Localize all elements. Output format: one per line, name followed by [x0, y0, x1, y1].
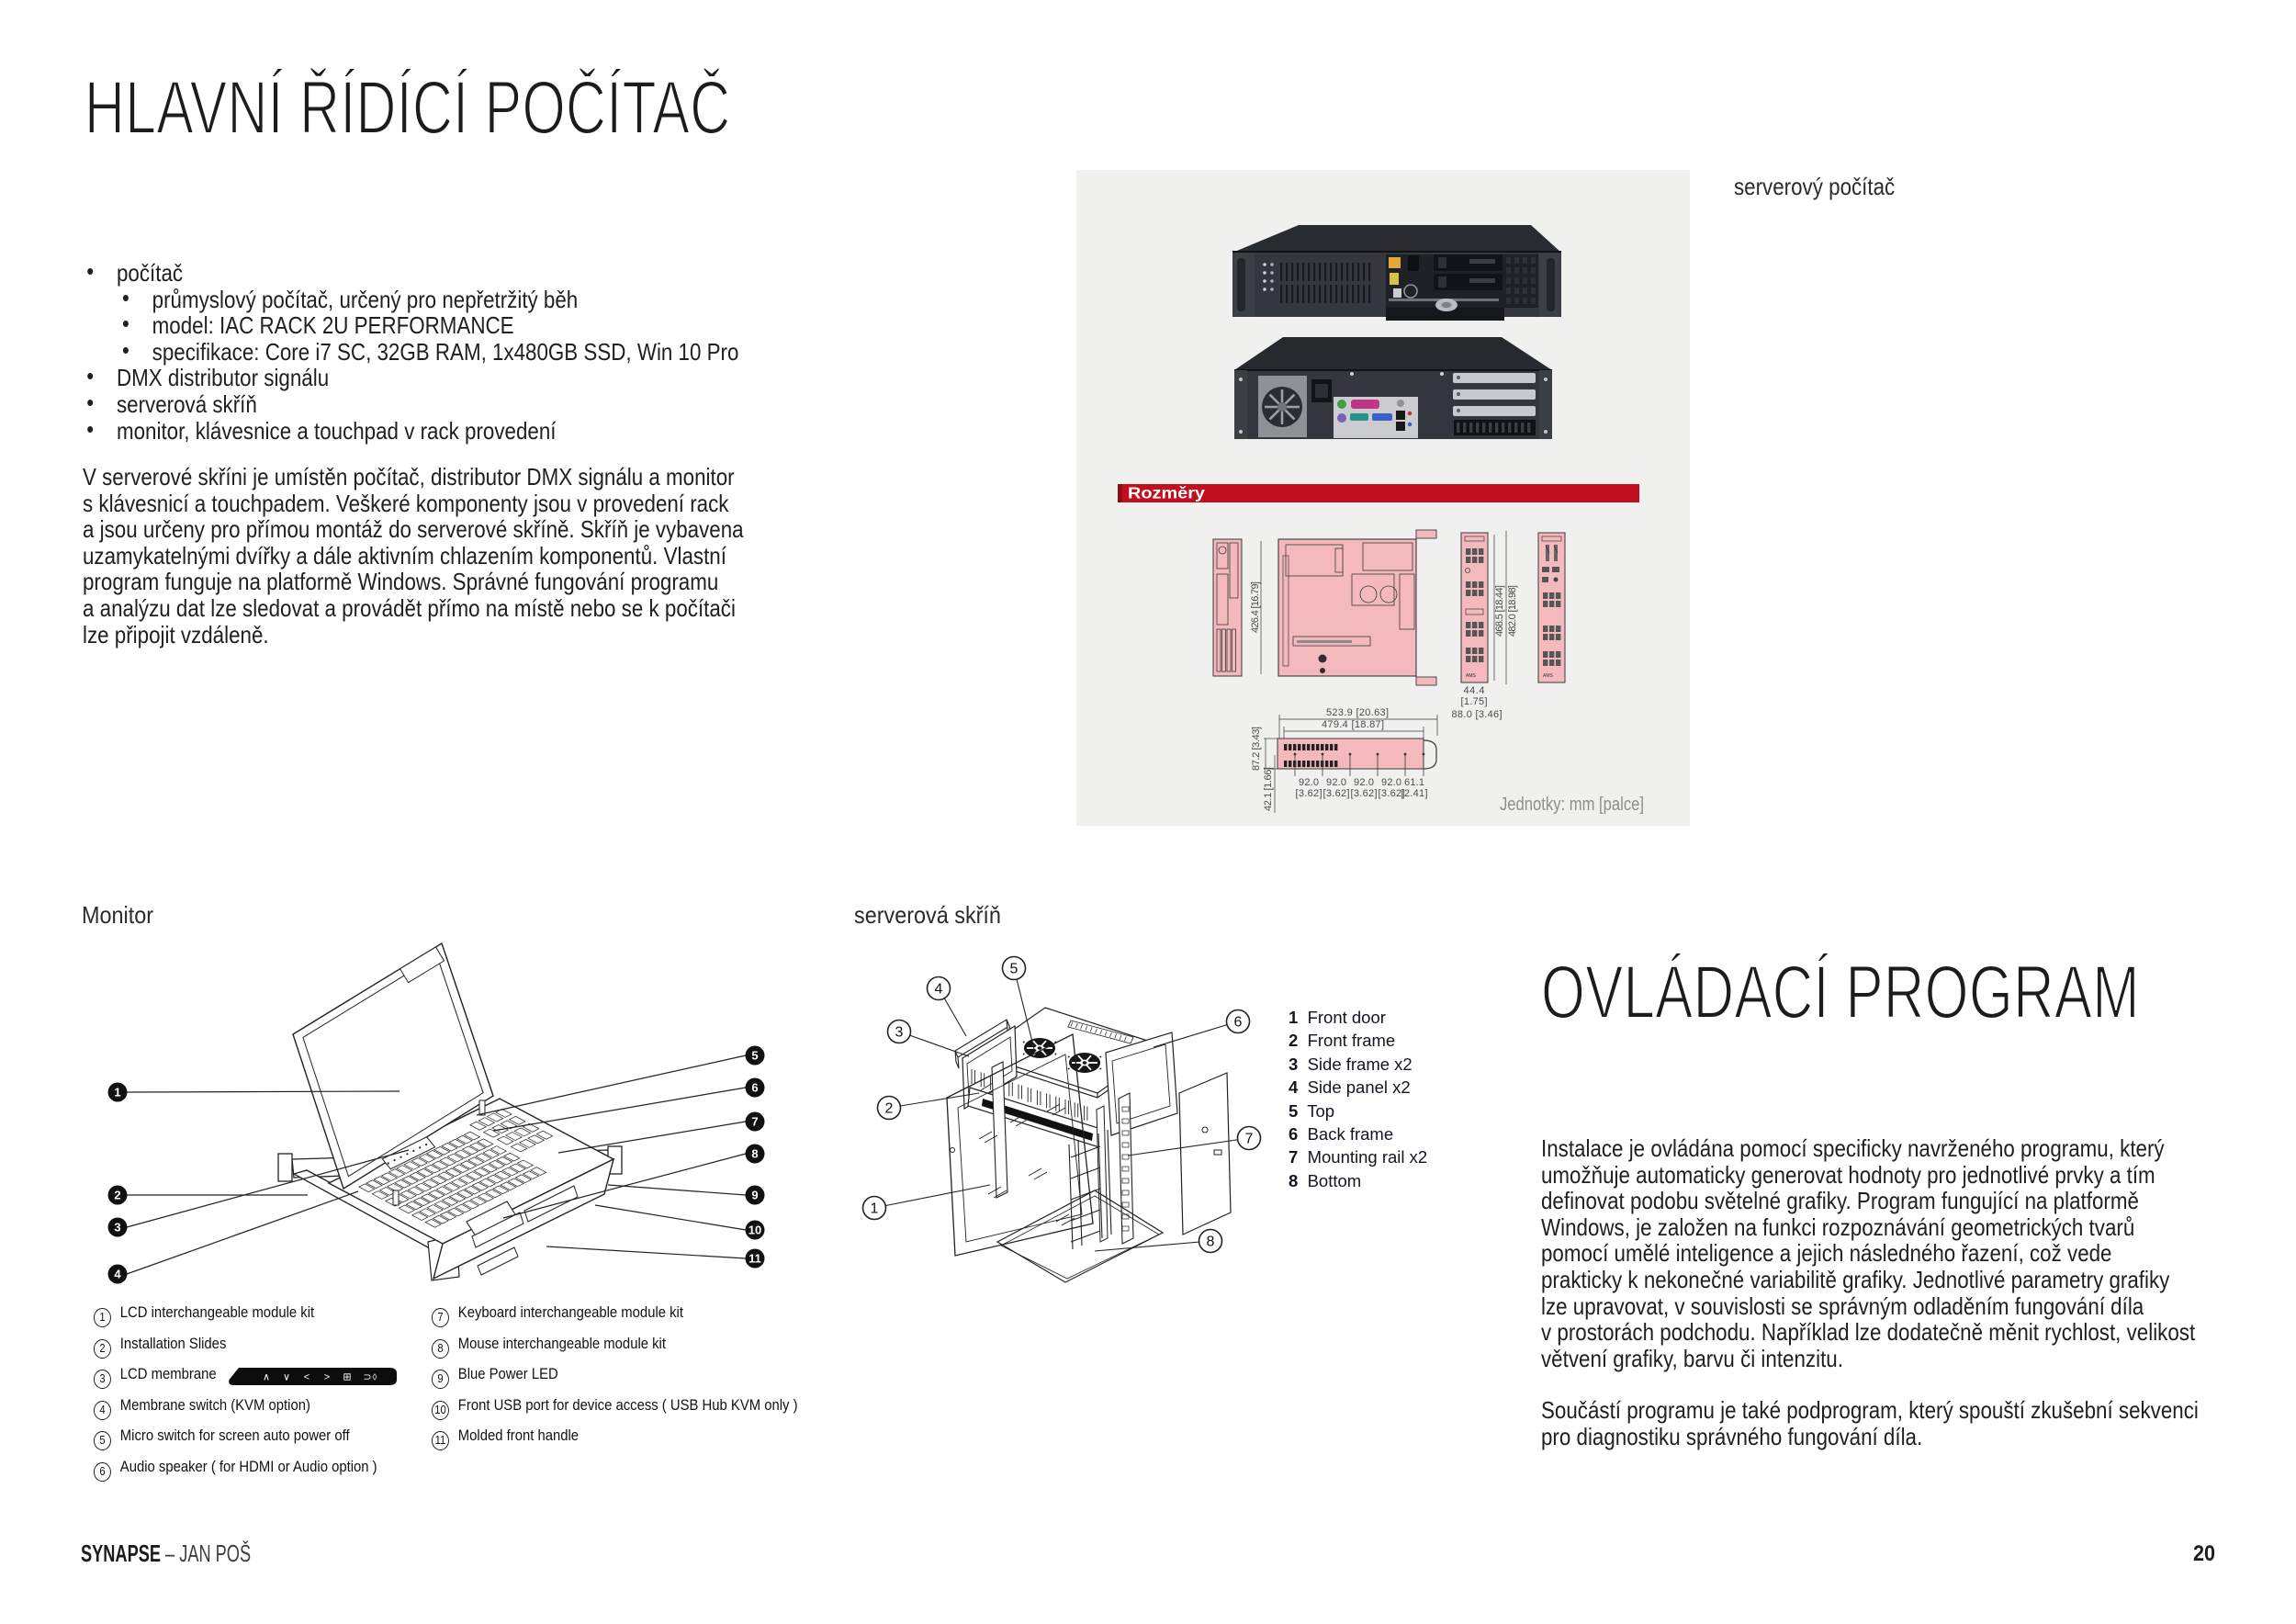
svg-text:3: 3	[895, 1025, 904, 1041]
svg-text:7: 7	[751, 1115, 758, 1129]
svg-text:8: 8	[1207, 1235, 1215, 1250]
svg-text:2: 2	[885, 1101, 894, 1117]
svg-text:4: 4	[114, 1268, 121, 1281]
svg-text:9: 9	[751, 1189, 758, 1202]
svg-text:◊: ◊	[373, 1373, 377, 1383]
svg-text:92.0: 92.0	[1381, 777, 1401, 788]
svg-text:[3.62]: [3.62]	[1351, 788, 1378, 799]
svg-text:[3.62]: [3.62]	[1296, 788, 1322, 799]
svg-text:8: 8	[751, 1147, 758, 1161]
svg-text:[1.75]: [1.75]	[1461, 696, 1488, 707]
svg-text:6: 6	[751, 1081, 758, 1095]
svg-text:92.0: 92.0	[1299, 777, 1319, 788]
svg-text:[2.41]: [2.41]	[1401, 788, 1428, 799]
svg-text:3: 3	[114, 1221, 120, 1235]
svg-text:1: 1	[114, 1086, 120, 1100]
svg-text:87.2 [3.43]: 87.2 [3.43]	[1251, 727, 1262, 771]
svg-text:[3.62]: [3.62]	[1323, 788, 1350, 799]
svg-text:∧: ∧	[263, 1372, 270, 1383]
svg-text:6: 6	[1234, 1015, 1243, 1031]
svg-text:⊃: ⊃	[363, 1372, 371, 1383]
svg-text:AMS: AMS	[1543, 673, 1554, 679]
svg-text:42.1 [1.66]: 42.1 [1.66]	[1263, 767, 1274, 811]
svg-text:468.5 [18.44]: 468.5 [18.44]	[1494, 585, 1505, 637]
svg-text:>: >	[324, 1372, 330, 1383]
svg-text:44.4: 44.4	[1464, 685, 1485, 696]
svg-text:5: 5	[751, 1049, 758, 1063]
svg-text:92.0: 92.0	[1326, 777, 1346, 788]
svg-text:523.9 [20.63]: 523.9 [20.63]	[1326, 707, 1389, 718]
svg-text:<: <	[304, 1372, 310, 1383]
svg-text:426.4 [16.79]: 426.4 [16.79]	[1250, 581, 1261, 633]
svg-text:Jednotky: mm [palce]: Jednotky: mm [palce]	[1500, 795, 1644, 815]
svg-text:11: 11	[748, 1252, 761, 1266]
svg-text:⊞: ⊞	[343, 1372, 351, 1383]
svg-text:7: 7	[1245, 1132, 1254, 1147]
svg-text:1: 1	[871, 1201, 879, 1217]
svg-text:AMS: AMS	[1466, 673, 1477, 679]
svg-text:92.0: 92.0	[1354, 777, 1374, 788]
svg-text:Rozměry: Rozměry	[1128, 484, 1205, 502]
svg-text:61.1: 61.1	[1404, 777, 1424, 788]
svg-text:479.4 [18.87]: 479.4 [18.87]	[1322, 719, 1384, 730]
svg-text:4: 4	[935, 982, 943, 998]
svg-text:5: 5	[1010, 962, 1019, 977]
svg-text:88.0 [3.46]: 88.0 [3.46]	[1452, 709, 1503, 720]
svg-text:10: 10	[748, 1224, 761, 1237]
svg-text:2: 2	[114, 1189, 120, 1202]
svg-text:∨: ∨	[283, 1372, 290, 1383]
svg-text:482.0 [18.98]: 482.0 [18.98]	[1507, 585, 1518, 637]
